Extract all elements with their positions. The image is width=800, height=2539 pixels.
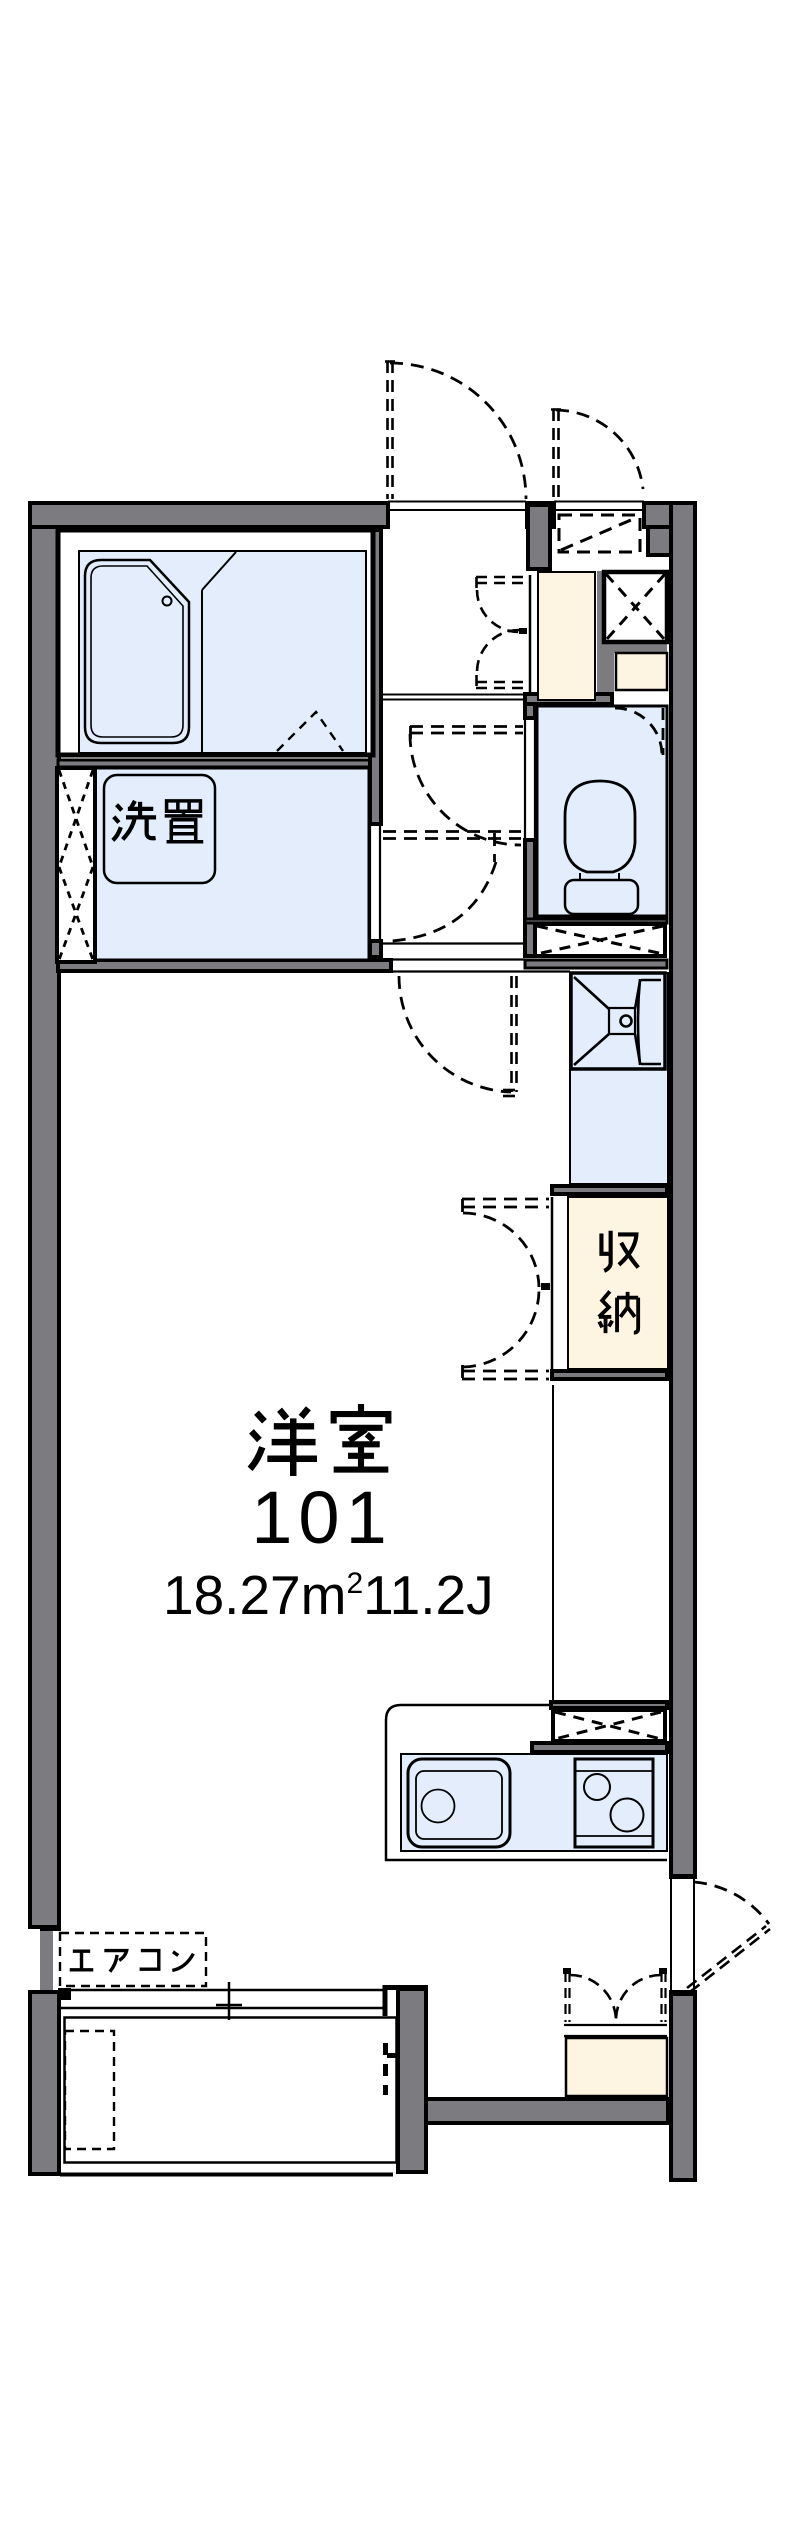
svg-text:18.27m211.2J: 18.27m211.2J — [163, 1564, 494, 1626]
svg-text:101: 101 — [251, 1476, 392, 1559]
